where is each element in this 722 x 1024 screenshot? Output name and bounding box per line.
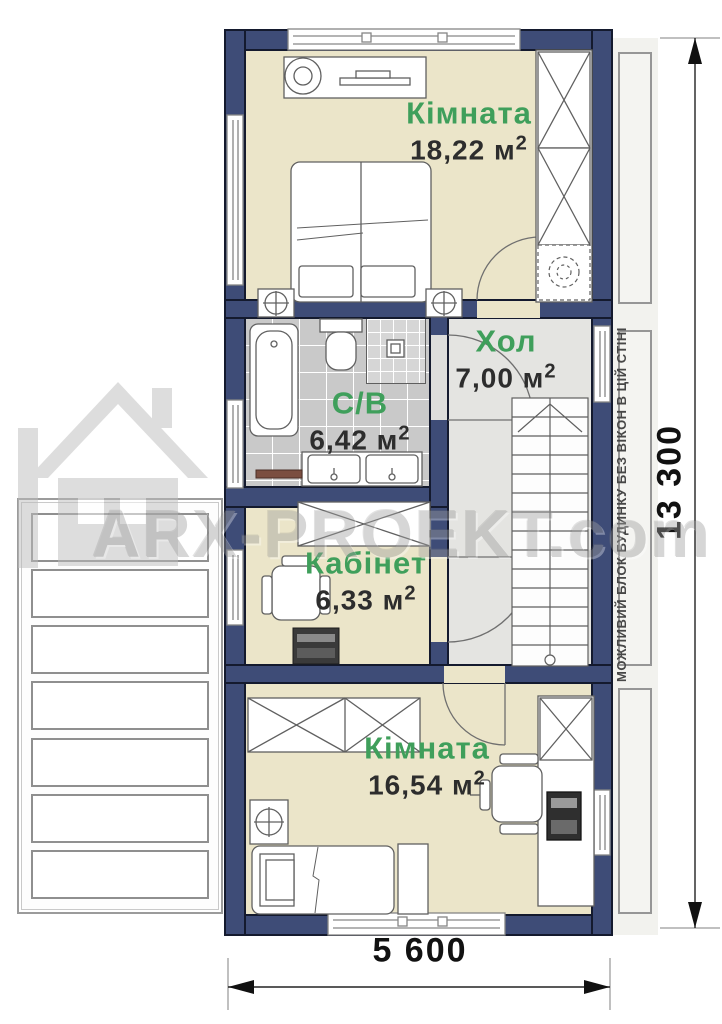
room-area: 18,22 м2	[406, 133, 532, 165]
nightstand-icon	[250, 800, 288, 844]
window-right-bedroom	[594, 790, 610, 855]
boiler-icon	[538, 245, 590, 300]
room-area: 7,00 м2	[455, 361, 556, 393]
room-area: 16,54 м2	[364, 768, 490, 800]
floor-plan: Кімната 18,22 м2 С/В 6,42 м2 Хол 7,00 м2…	[0, 0, 722, 1024]
window-right-hall	[594, 326, 610, 402]
window-top	[288, 29, 520, 50]
window-left-bedroom	[227, 115, 243, 285]
bench-icon	[256, 470, 302, 478]
door-arc	[477, 237, 540, 300]
room-label-hall: Хол 7,00 м2	[455, 325, 556, 392]
room-label-bathroom: С/В 6,42 м2	[309, 387, 410, 454]
printer-icon	[293, 628, 339, 664]
sink-icon	[302, 452, 422, 486]
nightstand-icon	[426, 289, 462, 317]
room-name: Кабінет	[305, 547, 427, 580]
bathtub-icon	[250, 324, 298, 436]
room-name: Кімната	[406, 97, 532, 130]
shower-drain-icon	[387, 340, 404, 357]
window-left-office	[227, 550, 243, 625]
bed-icon	[252, 844, 428, 914]
side-note: МОЖЛИВИЙ БЛОК БУДИНКУ БЕЗ ВІКОН В ЦІЙ СТ…	[614, 318, 640, 692]
room-name: С/В	[309, 387, 410, 420]
chair-icon	[285, 58, 321, 94]
room-label-bedroom-top: Кімната 18,22 м2	[406, 97, 532, 164]
room-name: Хол	[455, 325, 556, 358]
dimension-label-width: 5 600	[372, 932, 467, 971]
room-area: 6,42 м2	[309, 423, 410, 455]
room-label-office: Кабінет 6,33 м2	[305, 547, 427, 614]
wardrobe-icon	[298, 502, 430, 546]
nightstand-icon	[258, 289, 294, 317]
toilet-icon	[320, 319, 362, 370]
window-left-bathroom	[227, 400, 243, 488]
room-label-bedroom-bottom: Кімната 16,54 м2	[364, 732, 490, 799]
stairs-icon	[512, 398, 588, 666]
room-area: 6,33 м2	[305, 583, 427, 615]
bed-icon	[291, 162, 431, 302]
room-name: Кімната	[364, 732, 490, 765]
desk-icon	[538, 696, 594, 906]
dimension-label-height: 13 300	[651, 424, 690, 540]
